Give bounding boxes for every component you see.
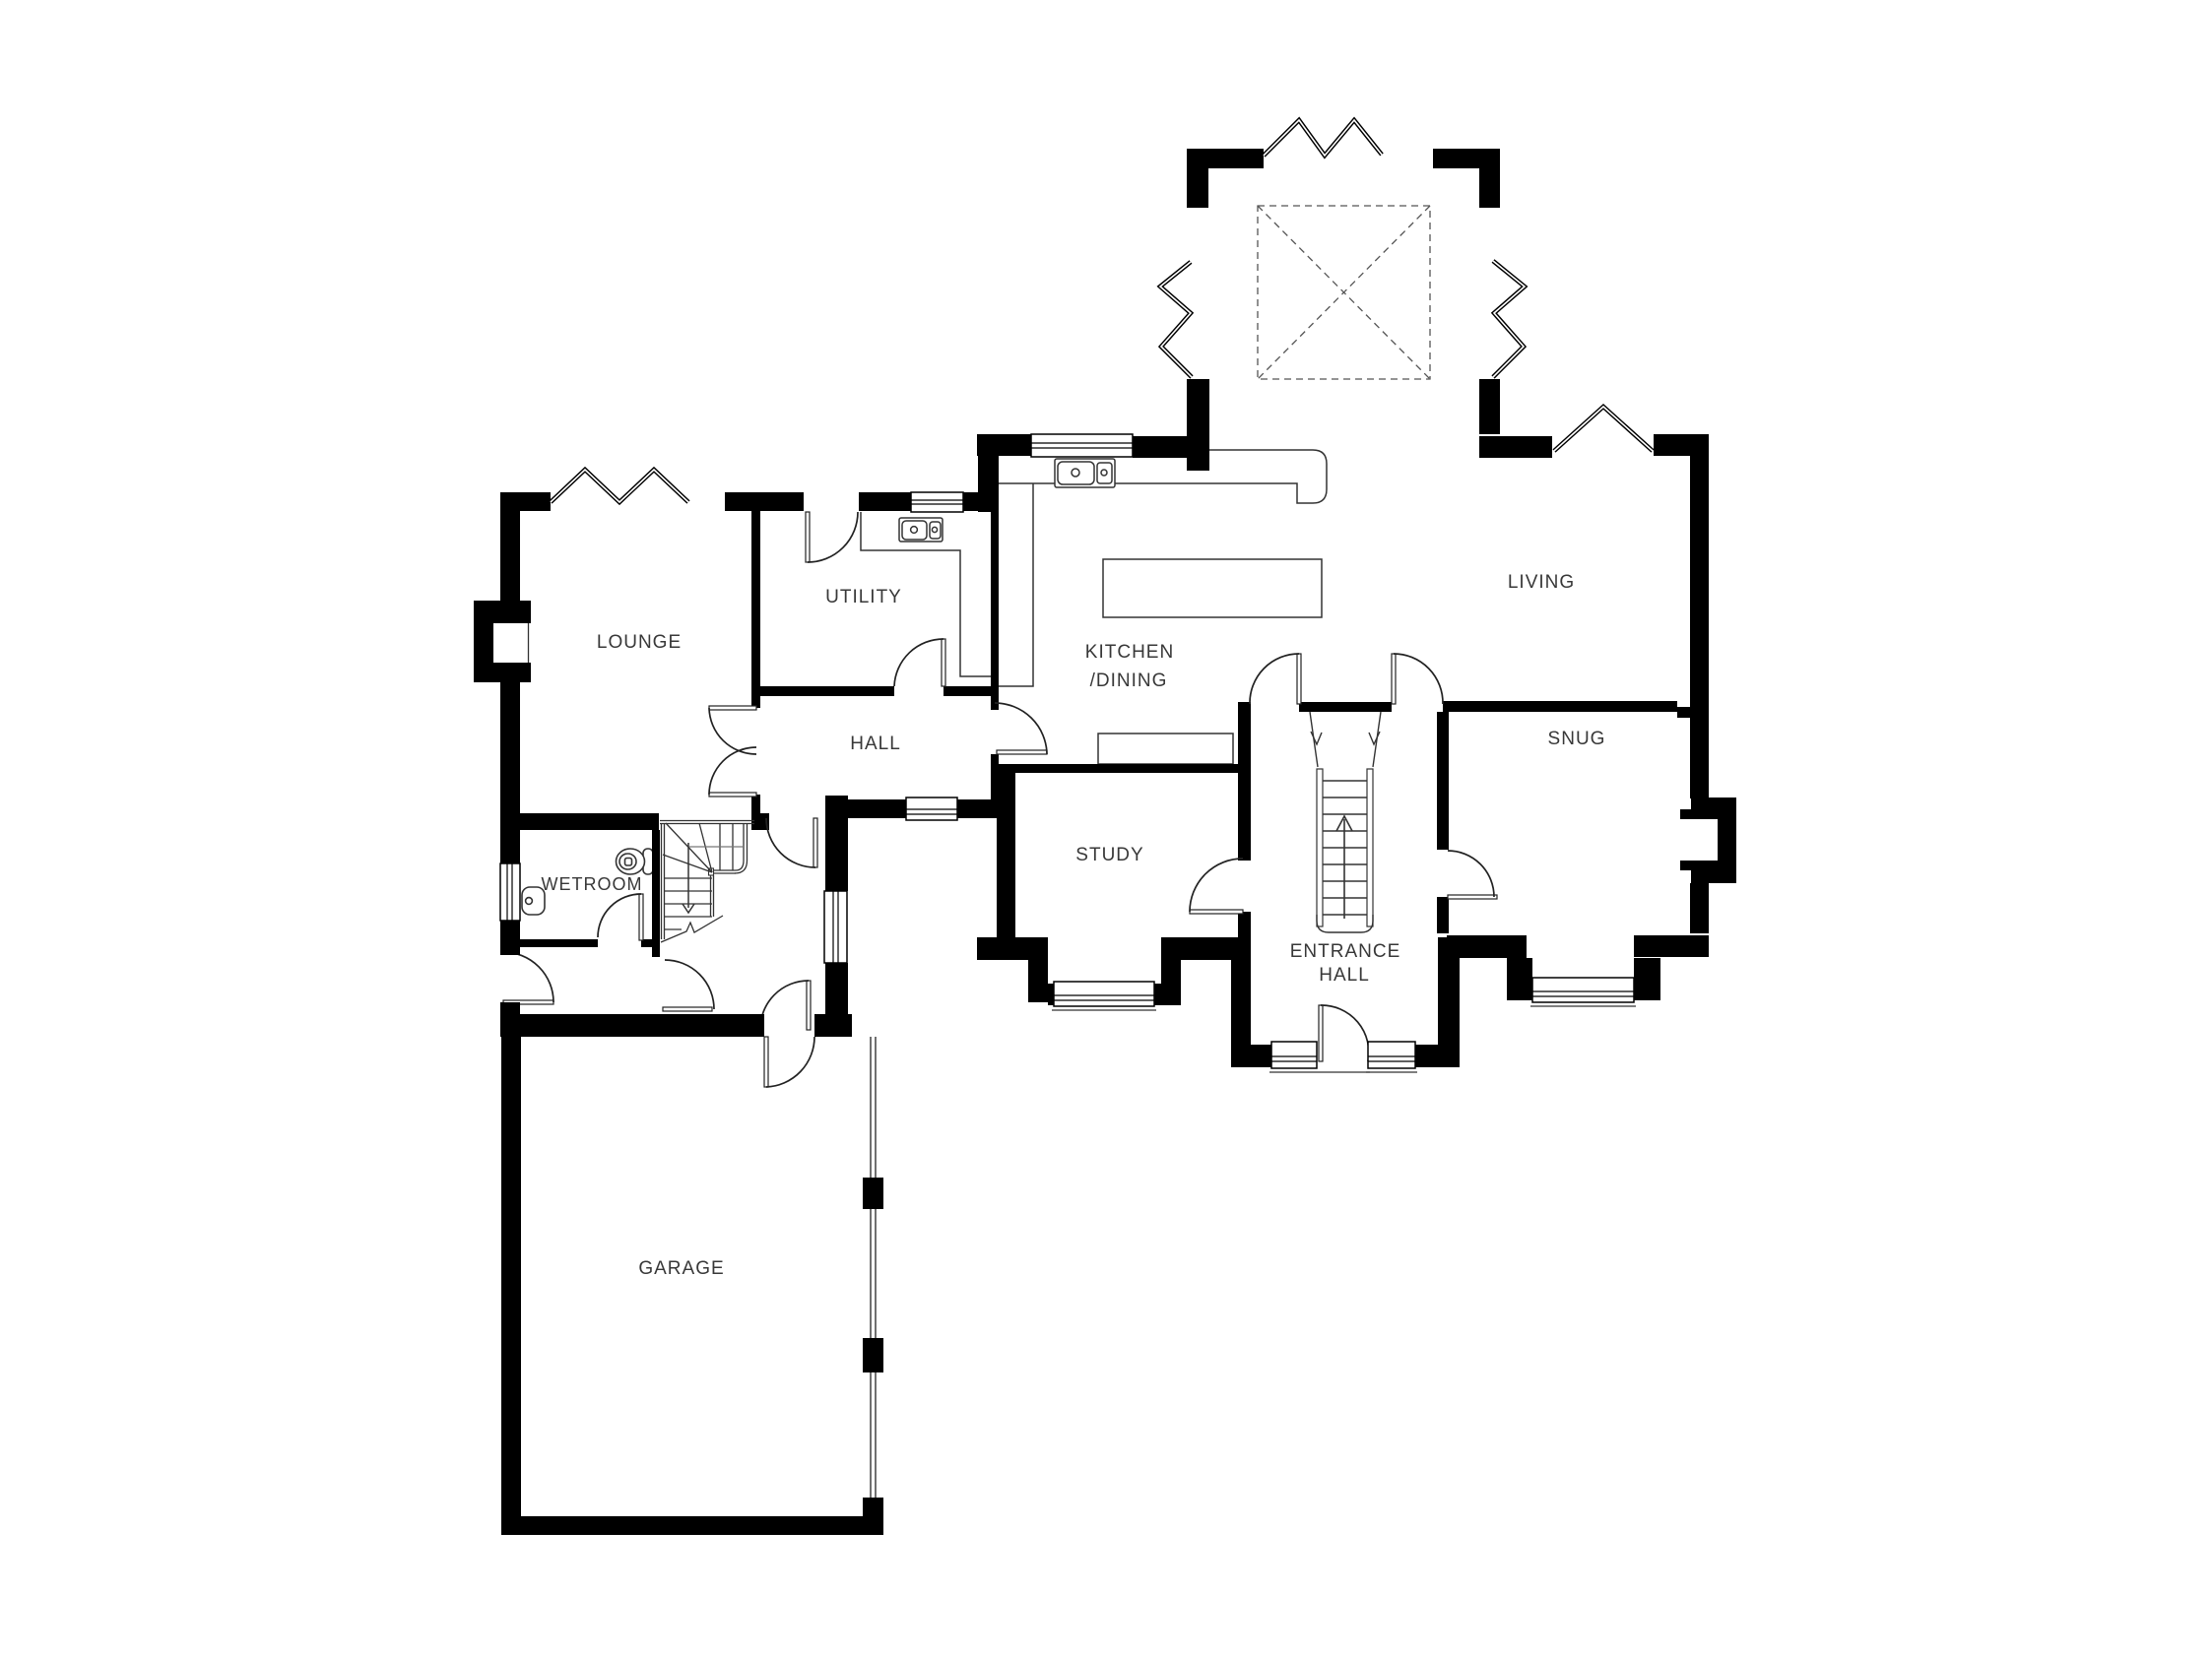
svg-text:SNUG: SNUG	[1548, 729, 1606, 749]
svg-text:HALL: HALL	[1319, 965, 1370, 986]
svg-text:LIVING: LIVING	[1508, 572, 1575, 593]
svg-text:LOUNGE: LOUNGE	[597, 632, 682, 653]
svg-text:KITCHEN: KITCHEN	[1085, 642, 1174, 663]
svg-text:/DINING: /DINING	[1090, 670, 1168, 691]
svg-text:GARAGE: GARAGE	[638, 1258, 724, 1279]
svg-text:WETROOM: WETROOM	[542, 874, 643, 894]
svg-text:UTILITY: UTILITY	[825, 587, 902, 607]
svg-text:STUDY: STUDY	[1075, 845, 1143, 865]
svg-text:ENTRANCE: ENTRANCE	[1290, 941, 1401, 962]
svg-text:HALL: HALL	[850, 734, 901, 754]
